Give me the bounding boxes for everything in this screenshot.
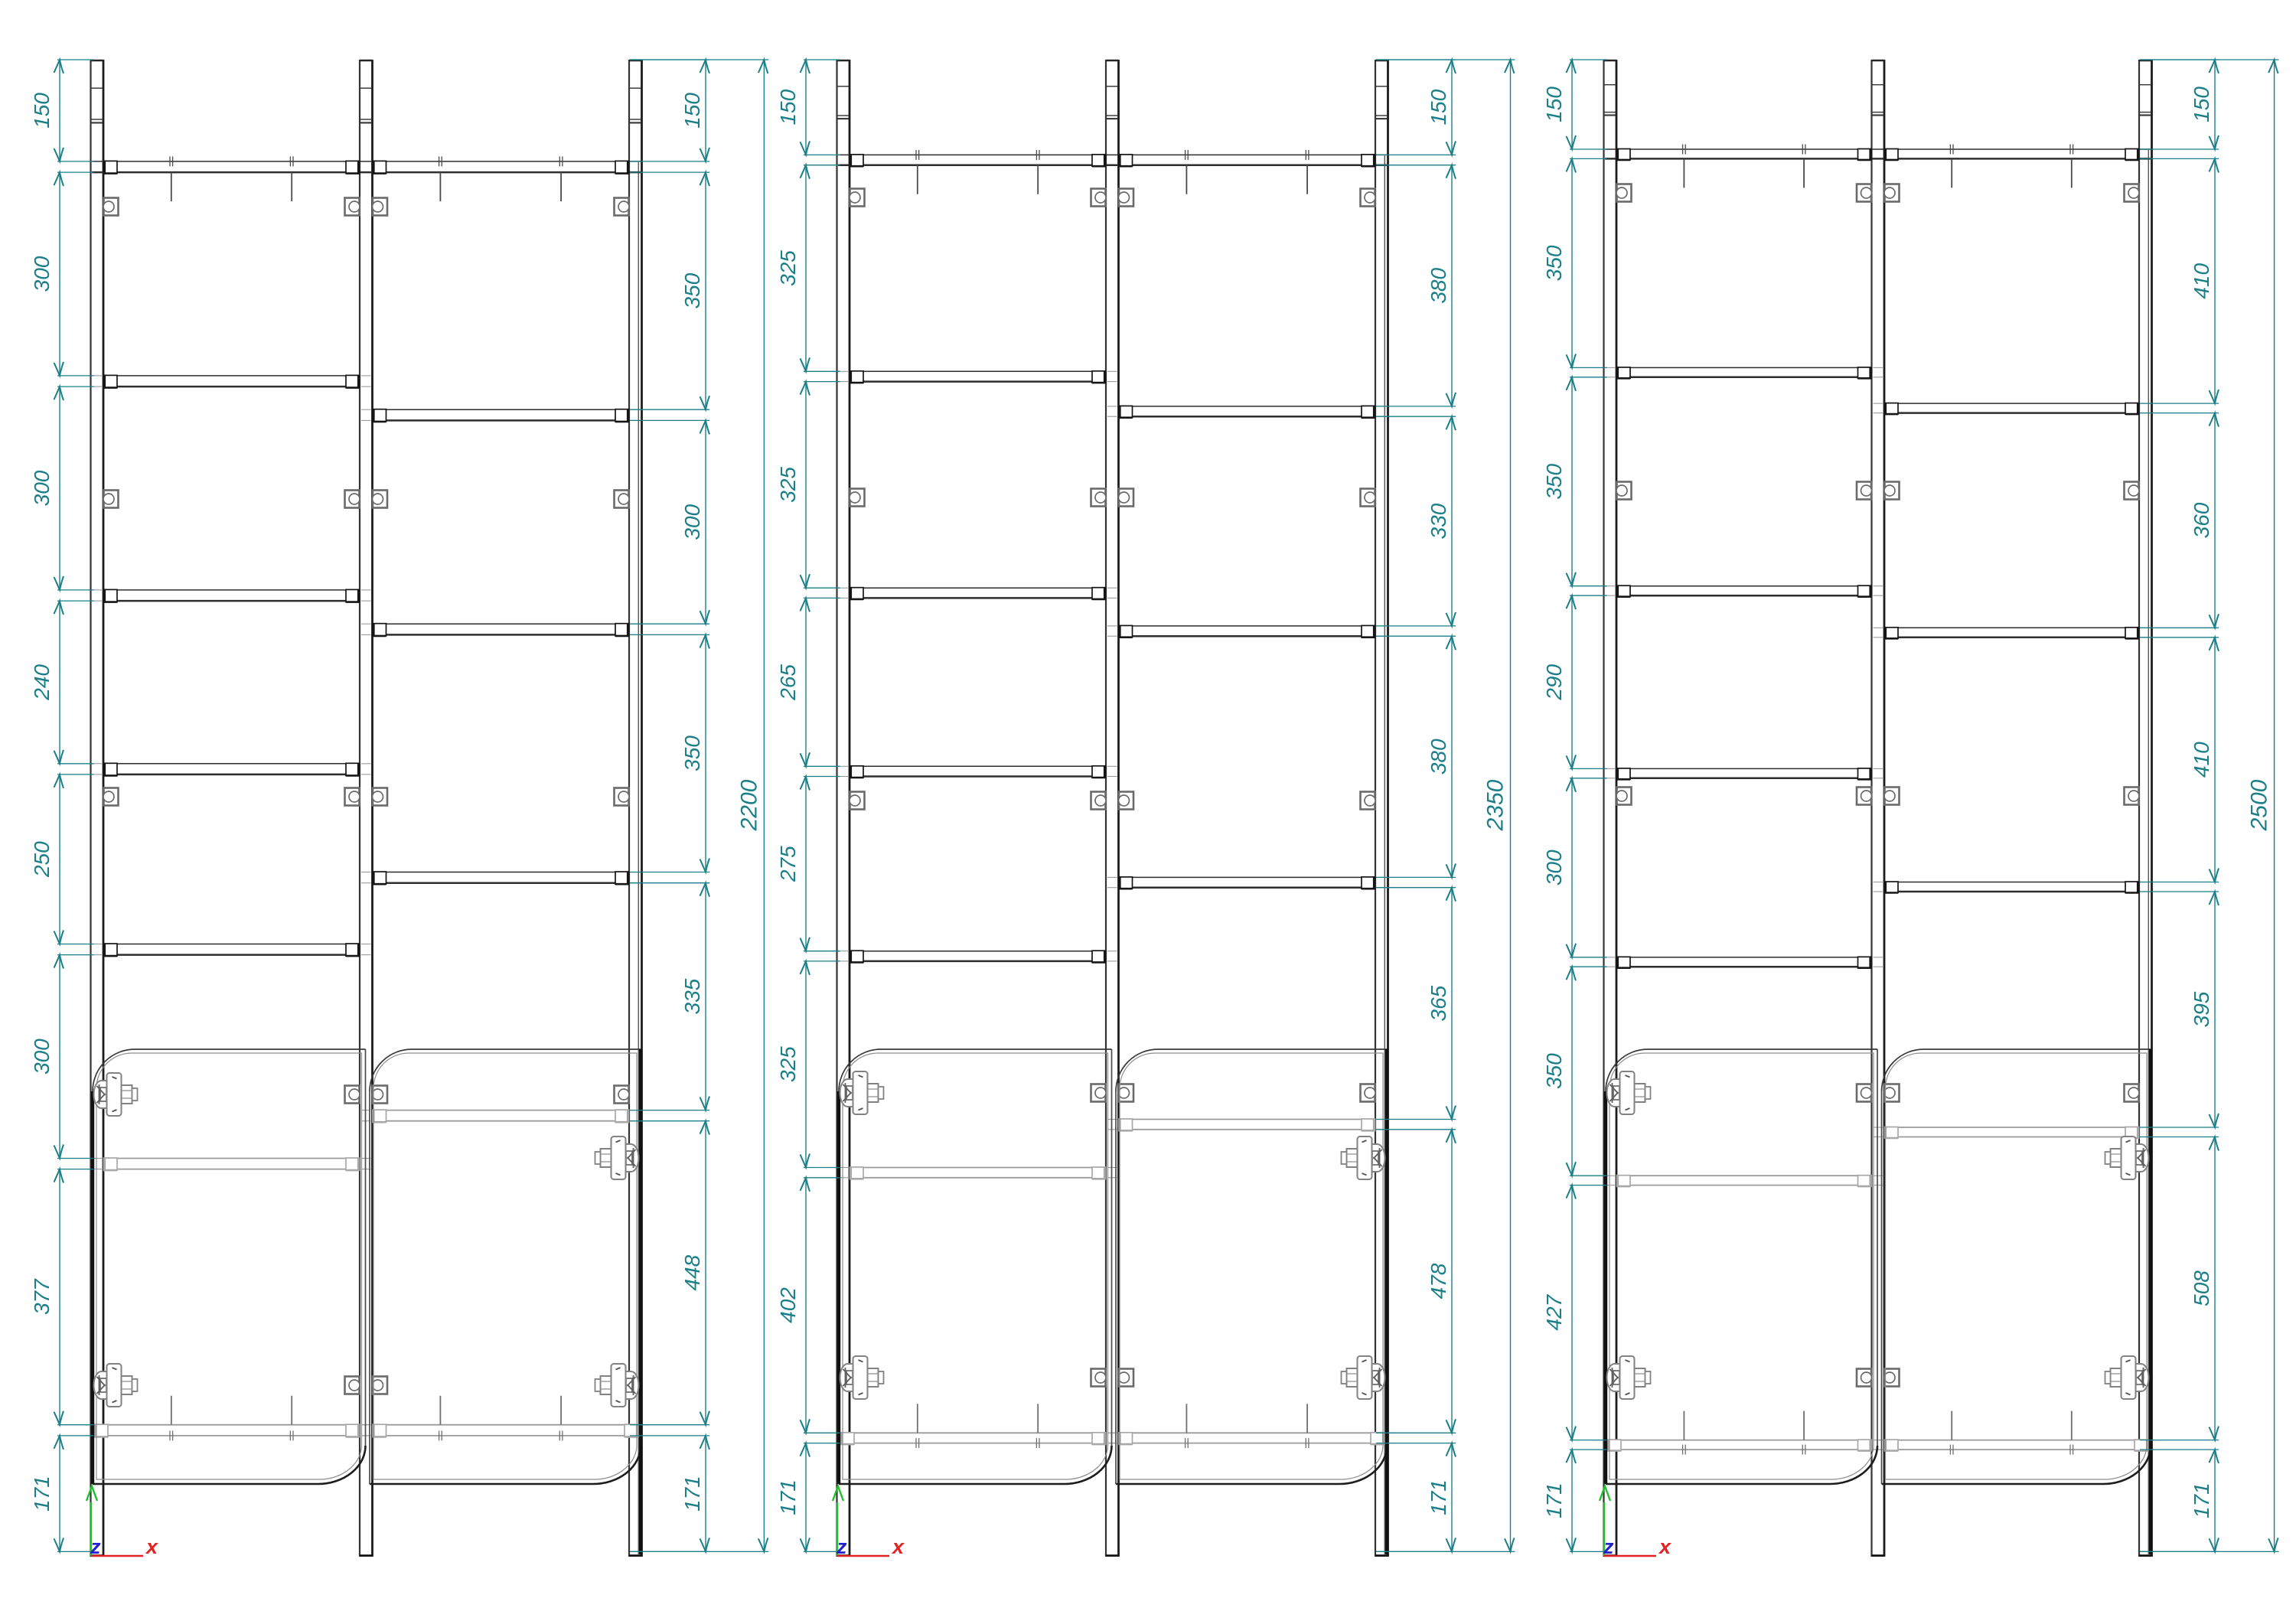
svg-text:350: 350 — [1542, 245, 1566, 281]
svg-text:410: 410 — [2190, 263, 2213, 299]
svg-text:z: z — [836, 1535, 847, 1558]
svg-text:395: 395 — [2190, 991, 2213, 1027]
svg-text:2350: 2350 — [1483, 779, 1508, 831]
svg-text:x: x — [1658, 1535, 1671, 1558]
svg-text:290: 290 — [1542, 664, 1566, 701]
svg-text:z: z — [1603, 1535, 1614, 1558]
svg-text:265: 265 — [776, 664, 800, 701]
svg-text:350: 350 — [1542, 464, 1566, 500]
svg-text:150: 150 — [1542, 86, 1566, 122]
svg-text:300: 300 — [30, 470, 54, 506]
svg-text:508: 508 — [2190, 1270, 2213, 1306]
svg-text:171: 171 — [680, 1476, 704, 1512]
svg-text:150: 150 — [2190, 86, 2213, 122]
svg-text:377: 377 — [30, 1278, 54, 1315]
svg-text:300: 300 — [30, 1039, 54, 1075]
svg-text:300: 300 — [30, 256, 54, 292]
svg-text:150: 150 — [1427, 89, 1450, 125]
svg-text:402: 402 — [776, 1287, 800, 1323]
svg-text:150: 150 — [30, 93, 54, 129]
svg-text:171: 171 — [1427, 1479, 1450, 1515]
svg-text:250: 250 — [30, 841, 54, 878]
svg-text:171: 171 — [776, 1479, 800, 1515]
svg-text:448: 448 — [680, 1254, 704, 1290]
svg-text:325: 325 — [776, 250, 800, 286]
svg-text:360: 360 — [2190, 502, 2213, 538]
svg-text:410: 410 — [2190, 742, 2213, 778]
svg-text:171: 171 — [30, 1476, 54, 1512]
svg-text:350: 350 — [680, 272, 704, 308]
svg-text:350: 350 — [1542, 1053, 1566, 1089]
svg-text:x: x — [891, 1535, 905, 1558]
svg-text:171: 171 — [2190, 1482, 2213, 1518]
svg-text:z: z — [90, 1535, 101, 1558]
svg-text:171: 171 — [1542, 1482, 1566, 1518]
svg-text:350: 350 — [680, 735, 704, 771]
svg-text:380: 380 — [1427, 268, 1450, 304]
svg-text:275: 275 — [776, 846, 800, 882]
svg-text:240: 240 — [30, 664, 54, 701]
svg-text:300: 300 — [1542, 850, 1566, 885]
svg-text:380: 380 — [1427, 739, 1450, 775]
svg-text:365: 365 — [1427, 985, 1450, 1021]
svg-text:330: 330 — [1427, 503, 1450, 539]
svg-text:2500: 2500 — [2247, 779, 2272, 831]
svg-text:335: 335 — [680, 978, 704, 1014]
svg-text:150: 150 — [776, 89, 800, 125]
svg-text:325: 325 — [776, 1046, 800, 1082]
svg-text:x: x — [145, 1535, 158, 1558]
svg-text:150: 150 — [680, 93, 704, 129]
svg-text:325: 325 — [776, 467, 800, 503]
svg-text:2200: 2200 — [736, 779, 762, 831]
svg-text:427: 427 — [1542, 1293, 1566, 1330]
svg-text:478: 478 — [1427, 1263, 1450, 1299]
svg-text:300: 300 — [680, 504, 704, 540]
